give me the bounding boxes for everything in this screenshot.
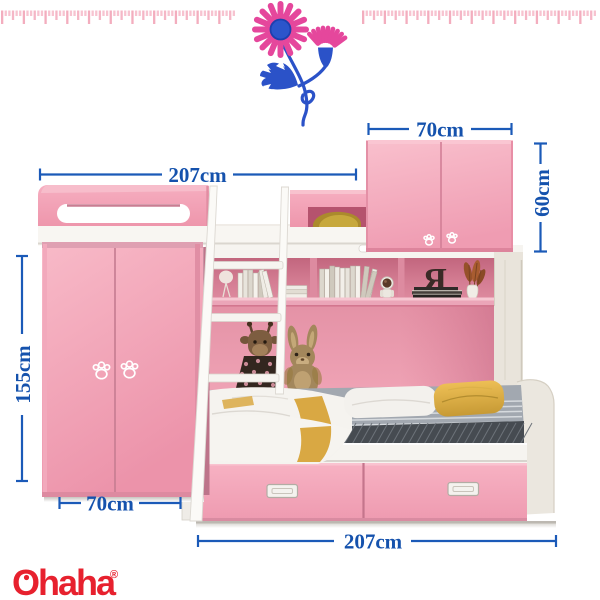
svg-text:70cm: 70cm xyxy=(86,492,134,516)
svg-text:207cm: 207cm xyxy=(344,530,403,554)
svg-text:155cm: 155cm xyxy=(11,345,35,404)
svg-text:®: ® xyxy=(110,569,118,581)
svg-text:207cm: 207cm xyxy=(168,163,227,187)
svg-text:60cm: 60cm xyxy=(530,169,554,217)
svg-text:Ohaha: Ohaha xyxy=(12,562,117,600)
svg-text:70cm: 70cm xyxy=(416,118,464,142)
